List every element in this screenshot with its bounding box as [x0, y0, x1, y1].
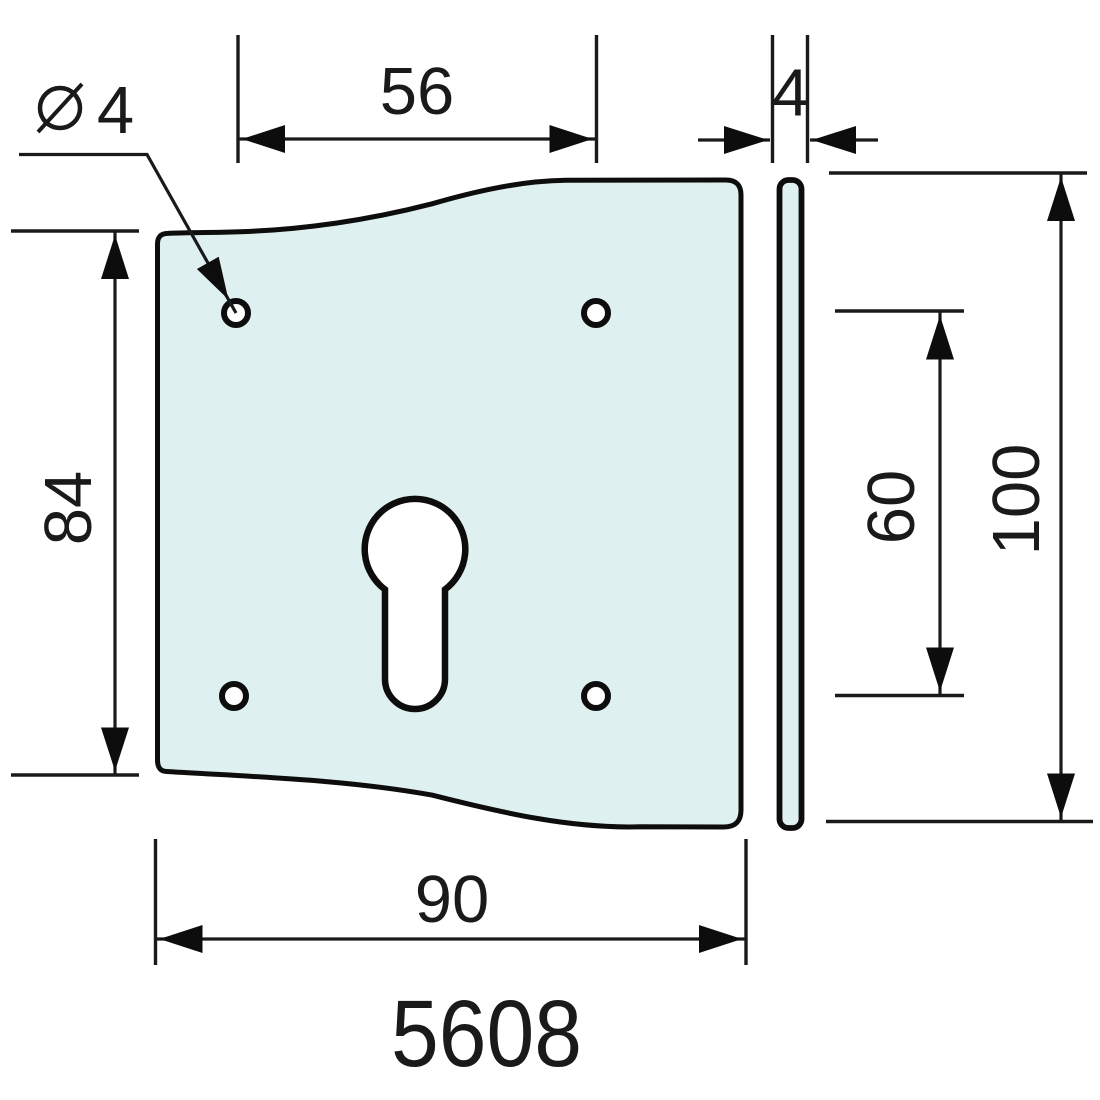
svg-text:4: 4	[97, 73, 134, 148]
svg-text:90: 90	[415, 862, 490, 937]
svg-text:4: 4	[772, 56, 809, 131]
svg-text:5608: 5608	[391, 981, 582, 1087]
svg-text:100: 100	[979, 444, 1054, 556]
svg-text:84: 84	[31, 471, 106, 546]
svg-text:60: 60	[854, 470, 929, 545]
svg-text:56: 56	[380, 54, 455, 129]
